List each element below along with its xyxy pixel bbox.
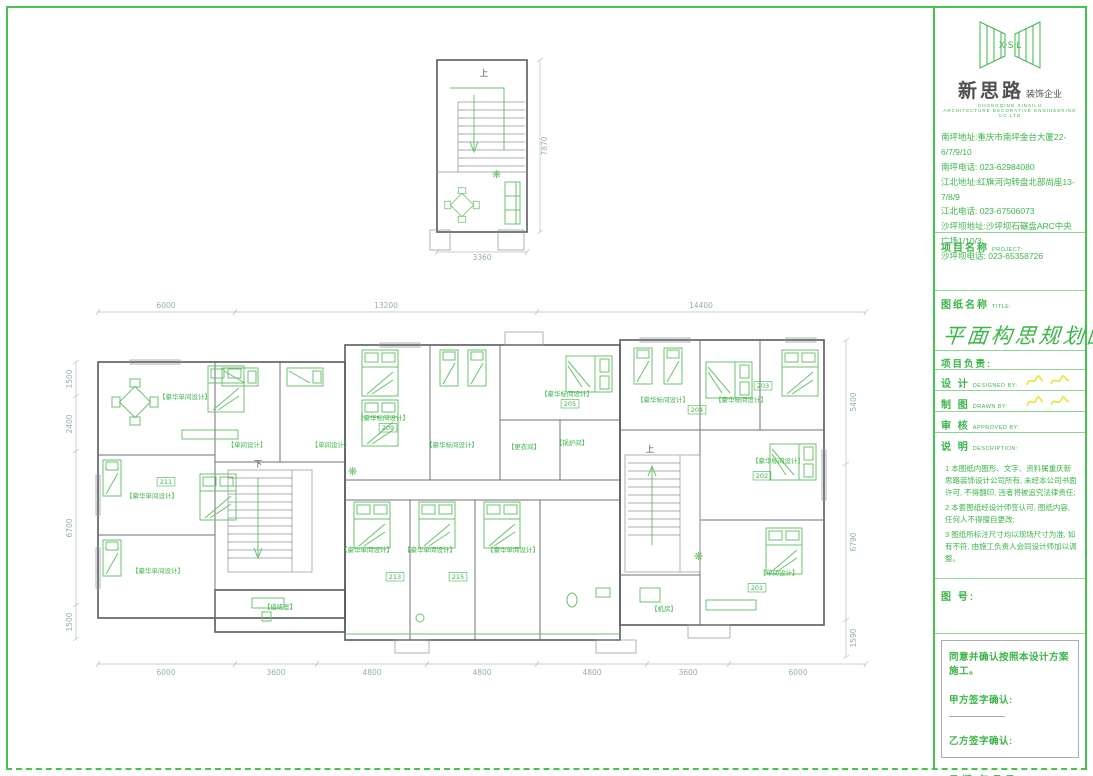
sheet-no-label: 图 号: [941, 592, 975, 603]
review-label-en: APPROVED BY: [973, 425, 1020, 431]
plan-roomno: 202 [756, 472, 768, 480]
design-label: 设 计 [941, 379, 970, 390]
plan-roomno: 213 [389, 573, 401, 581]
design-label-en: DESIGNED BY: [973, 383, 1018, 389]
upper-stairs [437, 88, 527, 172]
plan-room: 【豪华单间设计】 [132, 566, 184, 575]
plan-room: 【单间设计】 [312, 440, 351, 449]
main-plan-interior-walls [98, 340, 824, 640]
party-a-row: 甲方签字确认: [949, 692, 1071, 720]
plan-room: 【更衣间】 [508, 442, 541, 451]
dim-left-2400: 2400 [65, 414, 74, 433]
upper-furniture: ❋ [445, 169, 520, 224]
dim-top-6000: 6000 [156, 301, 175, 310]
note-2: 2 本套图纸经设计师签认可, 图纸内容, 任何人不得擅自更改; [945, 502, 1077, 526]
drawing-sheet: ❋ [0, 0, 1093, 776]
dim-right-6790: 6790 [849, 532, 858, 551]
right-stairwell [625, 455, 700, 572]
party-a-label: 甲方签字确认: [949, 695, 1013, 706]
plan-room: 【豪华标间设计】 [426, 440, 478, 449]
dim-bottom-3600-l: 3600 [266, 668, 285, 677]
plan-room: 【单间设计】 [228, 440, 267, 449]
plan-room: 【单间设计】 [760, 568, 799, 577]
party-b-signature-line [949, 747, 1005, 758]
party-b-label: 乙方签字确认: [949, 736, 1013, 747]
approved-by-field: 审 核APPROVED BY: [935, 411, 1085, 432]
plan-room: 【机房】 [651, 604, 677, 613]
plan-room: 【豪华单间设计】 [404, 545, 456, 554]
plan-room: 【锅炉间】 [556, 438, 589, 447]
plan-annotations: 6000132001440060003600480048004800360060… [65, 69, 858, 677]
plan-room: 【豪华标间设计】 [541, 389, 593, 398]
plan-room: 【豪华标间设计】 [637, 395, 689, 404]
project-label: 项目名称 [941, 243, 989, 254]
project-lead-field: 项目负责: [935, 350, 1085, 369]
drawn-by-field: 制 图DRAWN BY: [935, 390, 1085, 411]
address-line: 南坪电话: 023-62984080 [941, 160, 1079, 175]
dim-top-14400: 14400 [689, 301, 713, 310]
plan-room: 【豪华单间设计】 [487, 545, 539, 554]
plan-roomno: 209 [382, 424, 394, 432]
dim-left-1500-t: 1500 [65, 369, 74, 388]
upper-stair-up-label: 上 [480, 69, 489, 79]
plant-icon: ❋ [694, 551, 703, 563]
plan-roomno: 205 [564, 400, 576, 408]
plan-room: 【豪华单间设计】 [341, 545, 393, 554]
party-a-signature-line [949, 706, 1005, 717]
dim-bottom-4800-3: 4800 [582, 668, 601, 677]
date-row: 日 期: 年 月 日 [949, 772, 1071, 776]
note-3: 3 图纸所标注尺寸均以现场尺寸为准, 如有不符, 由施工负责人会同设计师加以调整… [945, 529, 1077, 565]
drawing-title: 平面构思规划图 [941, 320, 1080, 350]
left-stairwell [228, 470, 312, 572]
plan-room: 【豪华标间设计】 [715, 395, 767, 404]
brand-suffix: 装饰企业 [1026, 89, 1062, 99]
window-marks [96, 338, 826, 588]
address-line: 江北电话: 023-67506073 [941, 204, 1079, 219]
dim-bottom-4800-2: 4800 [472, 668, 491, 677]
party-b-row: 乙方签字确认: [949, 733, 1071, 761]
drawing-title-label-en: TITLE: [992, 304, 1012, 310]
dim-bottom-4800-1: 4800 [362, 668, 381, 677]
floor-plan-canvas: ❋ [0, 0, 933, 776]
review-label: 审 核 [941, 421, 970, 432]
dim-right-1590: 1590 [849, 628, 858, 647]
dim-upper-7870: 7870 [540, 136, 549, 155]
designed-by-field: 设 计DESIGNED BY: [935, 369, 1085, 390]
project-label-en: PROJECT: [992, 247, 1023, 253]
designer-signature [1025, 372, 1071, 388]
description-label: 说 明 [941, 442, 970, 453]
plan-room: 【豪华单间设计】 [159, 392, 211, 401]
description-field: 说 明DESCRIPTION: 1 本图纸内图形、文字、资料属重庆新思路装饰设计… [935, 432, 1085, 578]
plant-icon: ❋ [348, 466, 357, 478]
stair-down-label: 下 [254, 460, 263, 470]
dim-right-5400: 5400 [849, 392, 858, 411]
dim-top-13200: 13200 [374, 301, 398, 310]
plan-room: 【豪华单间设计】 [126, 491, 178, 500]
logo-initials: X·S·L [999, 41, 1022, 51]
plan-roomno: 215 [452, 573, 464, 581]
plant-icon: ❋ [492, 169, 501, 181]
drawing-title-label: 图纸名称 [941, 300, 989, 311]
company-logo-icon: X·S·L [935, 16, 1085, 74]
plan-roomno: 201 [751, 584, 763, 592]
upper-floor-plan: ❋ [430, 58, 543, 255]
dim-bottom-3600-r: 3600 [678, 668, 697, 677]
plan-room: 【值班室】 [264, 602, 297, 611]
confirmation-statement: 同意并确认按照本设计方案施工。 [949, 649, 1071, 677]
address-line: 江北地址:红旗河沟转盘北部尚座13-7/8/9 [941, 175, 1079, 205]
draft-label: 制 图 [941, 400, 970, 411]
brand-subtitle-en: ARCHITECTURE DECORATIVE ENGINEERING CO.L… [935, 108, 1085, 118]
project-name-field: 项目名称PROJECT: [935, 232, 1085, 290]
brand-name: 新思路 [958, 80, 1024, 102]
plan-roomno: 211 [160, 478, 172, 486]
confirmation-box: 同意并确认按照本设计方案施工。 甲方签字确认: 乙方签字确认: 日 期: 年 月… [941, 640, 1079, 758]
dim-bottom-6000-r: 6000 [788, 668, 807, 677]
dim-left-1500-b: 1500 [65, 612, 74, 631]
dim-left-6700: 6700 [65, 518, 74, 537]
dim-bottom-6000-l: 6000 [156, 668, 175, 677]
sheet-number-field: 图 号: [935, 578, 1085, 633]
dim-upper-3360: 3360 [472, 253, 491, 262]
note-1: 1 本图纸内图形、文字、资料属重庆新思路装饰设计公司所有, 未经本公司书面许可,… [945, 463, 1077, 499]
address-line: 南坪地址:重庆市南坪金台大厦22-6/7/9/10 [941, 130, 1079, 160]
plan-roomno: 204 [691, 406, 703, 414]
stair-up-label: 上 [646, 445, 655, 455]
plan-room: 【豪华标间设计】 [357, 413, 409, 422]
drawing-title-field: 图纸名称TITLE: 平面构思规划图 [935, 290, 1085, 350]
main-plan-exterior-walls [98, 332, 824, 653]
description-label-en: DESCRIPTION: [973, 446, 1018, 452]
title-block: X·S·L 新思路装饰企业 CHONGQING XINSILU ARCHITEC… [933, 8, 1085, 768]
plan-roomno: 203 [757, 382, 769, 390]
plan-room: 【豪华标间设计】 [752, 456, 804, 465]
confirmation-section: 同意并确认按照本设计方案施工。 甲方签字确认: 乙方签字确认: 日 期: 年 月… [935, 633, 1085, 768]
draft-label-en: DRAWN BY: [973, 404, 1008, 410]
logo-section: X·S·L 新思路装饰企业 CHONGQING XINSILU ARCHITEC… [935, 8, 1085, 232]
draftsman-signature [1025, 393, 1071, 409]
